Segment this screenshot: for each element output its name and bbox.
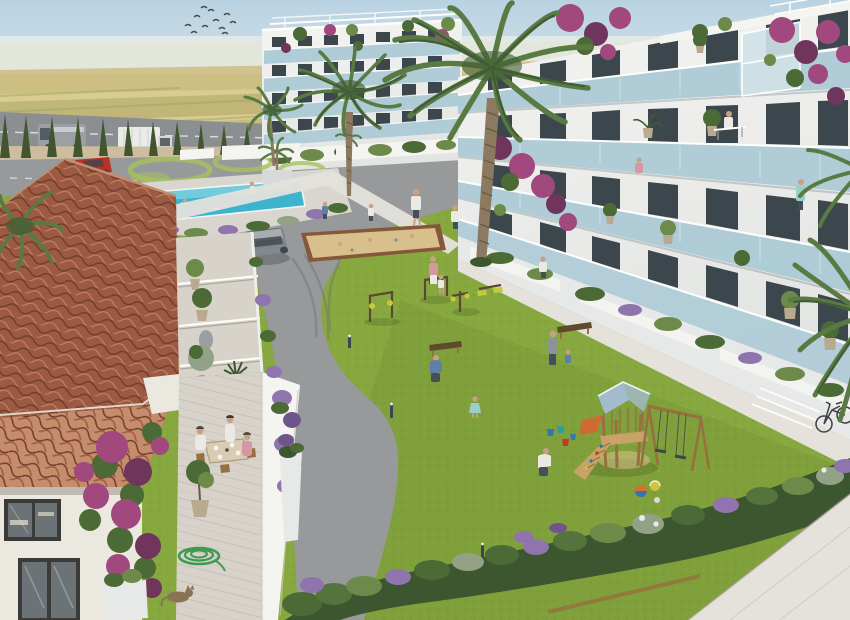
garden-wall-2 (222, 143, 300, 160)
rendering-canvas: Aerial 3D render of a new-build Mediterr… (0, 0, 850, 620)
terrace-planter (104, 569, 148, 620)
garden-wall-1 (180, 148, 214, 160)
house-door (18, 558, 80, 620)
bollard-light (390, 403, 393, 418)
bollard-light (481, 543, 484, 558)
house-window (4, 499, 61, 541)
bollard-light (348, 335, 351, 348)
courtyard-rendering: Aerial 3D render of a new-build Mediterr… (0, 0, 850, 620)
